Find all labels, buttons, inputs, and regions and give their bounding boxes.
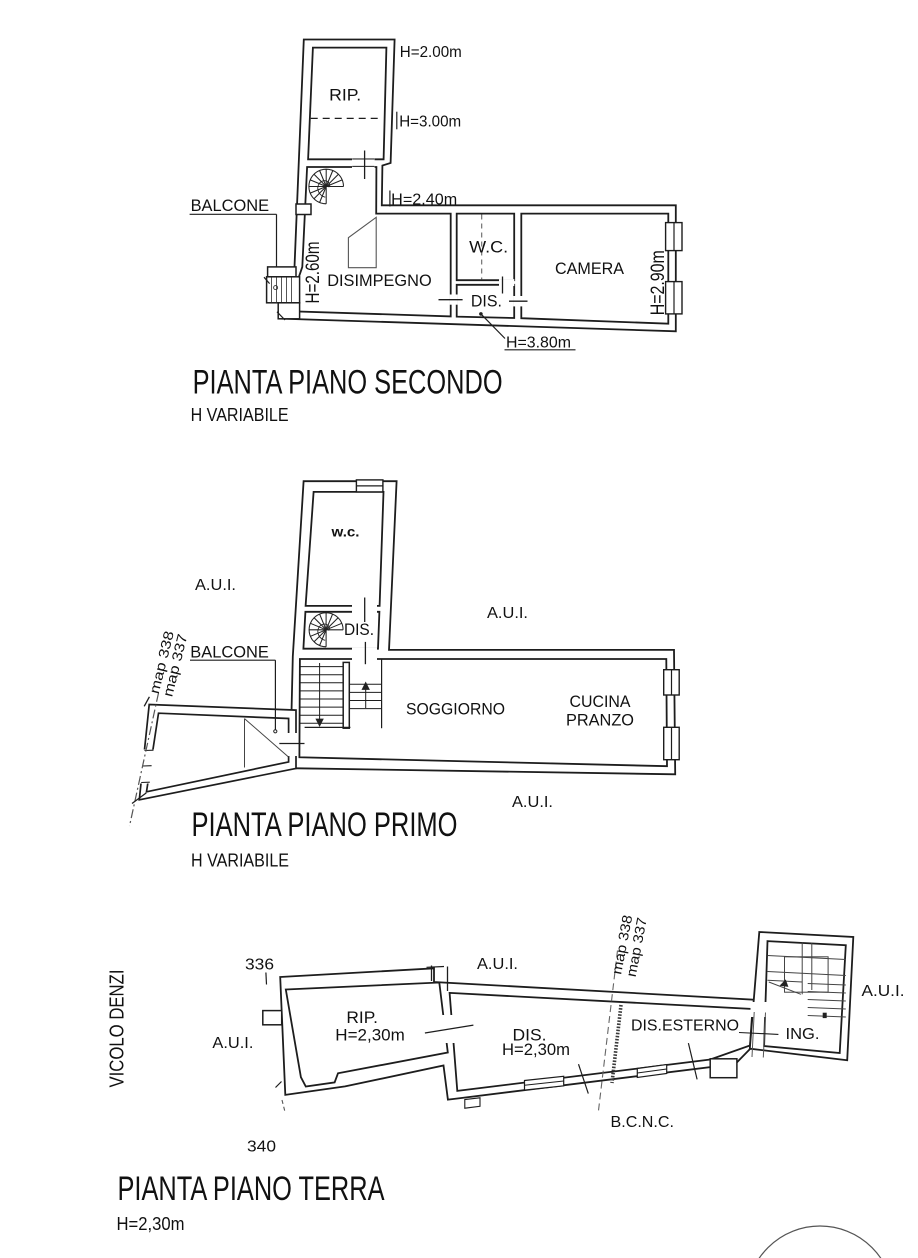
svg-text:CUCINA: CUCINA — [570, 692, 632, 711]
svg-text:W.C.: W.C. — [469, 238, 508, 257]
svg-text:CAMERA: CAMERA — [555, 259, 625, 278]
svg-text:H=3.00m: H=3.00m — [399, 114, 461, 131]
svg-text:H=2,30m: H=2,30m — [335, 1026, 405, 1045]
svg-text:BALCONE: BALCONE — [190, 642, 268, 661]
svg-text:DIS.ESTERNO: DIS.ESTERNO — [631, 1018, 739, 1035]
svg-text:SOGGIORNO: SOGGIORNO — [406, 700, 505, 719]
svg-text:DIS.: DIS. — [344, 620, 374, 639]
svg-text:BALCONE: BALCONE — [191, 196, 270, 215]
svg-text:A.U.I.: A.U.I. — [512, 794, 553, 811]
svg-text:w.c.: w.c. — [330, 525, 359, 540]
svg-text:H=2.90m: H=2.90m — [648, 250, 669, 315]
svg-text:A.U.I.: A.U.I. — [212, 1035, 253, 1052]
svg-text:A.U.I.: A.U.I. — [477, 956, 518, 973]
svg-text:H=2,30m: H=2,30m — [117, 1214, 185, 1234]
svg-text:RIP.: RIP. — [346, 1008, 378, 1027]
svg-text:H=2.60m: H=2.60m — [303, 242, 324, 304]
svg-text:PRANZO: PRANZO — [566, 710, 634, 729]
svg-text:H=2.00m: H=2.00m — [400, 44, 462, 61]
svg-text:H=3.80m: H=3.80m — [506, 335, 571, 352]
svg-text:DISIMPEGNO: DISIMPEGNO — [327, 271, 432, 290]
svg-text:H=2.40m: H=2.40m — [391, 191, 457, 208]
svg-text:ING.: ING. — [786, 1026, 820, 1043]
svg-text:B.C.N.C.: B.C.N.C. — [611, 1114, 675, 1131]
svg-text:PIANTA PIANO PRIMO: PIANTA PIANO PRIMO — [192, 806, 458, 844]
svg-text:PIANTA PIANO SECONDO: PIANTA PIANO SECONDO — [193, 364, 503, 402]
svg-text:A.U.I.: A.U.I. — [487, 605, 528, 622]
svg-text:DIS.: DIS. — [471, 292, 502, 311]
svg-text:336: 336 — [245, 957, 274, 974]
svg-text:H VARIABILE: H VARIABILE — [191, 851, 289, 871]
svg-text:H VARIABILE: H VARIABILE — [191, 405, 289, 425]
svg-text:340: 340 — [247, 1139, 276, 1156]
svg-text:PIANTA PIANO TERRA: PIANTA PIANO TERRA — [118, 1170, 385, 1208]
svg-text:A.U.I.: A.U.I. — [862, 983, 905, 1000]
svg-text:VICOLO DENZI: VICOLO DENZI — [107, 970, 129, 1088]
svg-text:A.U.I.: A.U.I. — [195, 577, 236, 594]
svg-text:H=2,30m: H=2,30m — [502, 1040, 570, 1059]
svg-text:RIP.: RIP. — [329, 86, 361, 105]
